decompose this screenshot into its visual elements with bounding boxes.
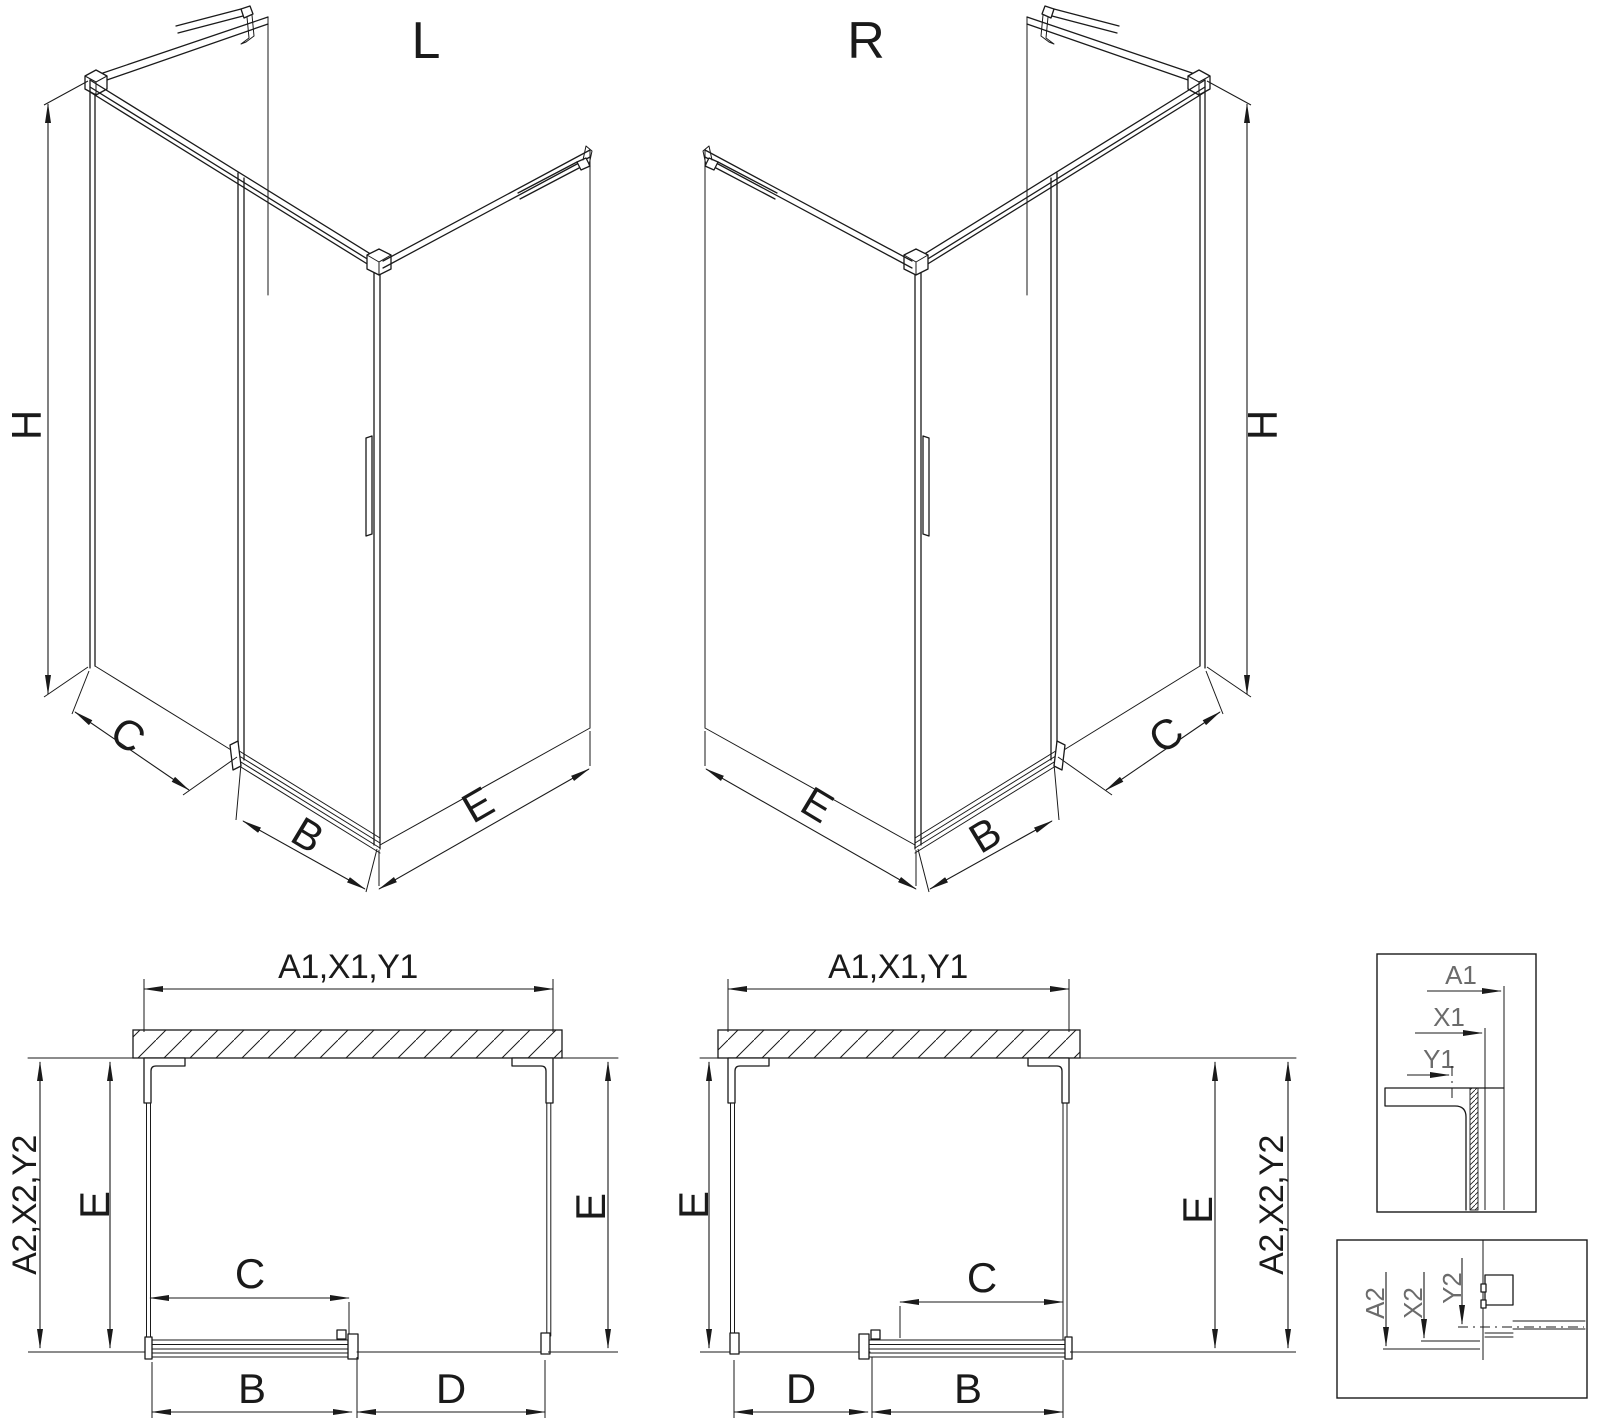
wall-section-hatched — [133, 1030, 562, 1058]
detail-x1-label: X1 — [1433, 1002, 1465, 1032]
shower-enclosure-drawing: L H C B E R H E B C A1,X1,Y1 E A2,X2,Y2 — [0, 0, 1600, 1423]
plan-right-dim-b: B — [954, 1365, 982, 1412]
wall-section-hatched — [718, 1030, 1080, 1058]
track-endcap-right — [1065, 1337, 1072, 1359]
plan-right-dim-top: A1,X1,Y1 — [828, 948, 968, 986]
iso-left-title: L — [412, 12, 441, 70]
iso-right-dim-c: C — [1140, 707, 1191, 763]
plan-right-dim-e-left: E — [670, 1191, 717, 1219]
plan-left-dim-outer: A2,X2,Y2 — [6, 1135, 44, 1275]
iso-left-dim-e: E — [454, 777, 502, 832]
plan-right-dim-c: C — [967, 1254, 997, 1301]
technical-drawing-sheet: L H C B E R H E B C A1,X1,Y1 E A2,X2,Y2 — [0, 0, 1600, 1423]
iso-right-dim-h: H — [1239, 410, 1286, 440]
dim-ext-a1 — [144, 979, 553, 1032]
iso-right-dim-b: B — [961, 807, 1009, 862]
floor-bracket-left — [730, 1333, 739, 1354]
plan-left-dim-top: A1,X1,Y1 — [278, 948, 418, 986]
iso-right-title: R — [847, 12, 885, 70]
plan-left-dim-d: D — [436, 1365, 466, 1412]
floor-bracket-right — [541, 1333, 550, 1354]
glass-panel-right — [547, 1103, 551, 1336]
iso-left-dim-b: B — [284, 807, 332, 862]
plan-left-dim-e-right: E — [567, 1193, 614, 1221]
glass-section-hatched — [1470, 1088, 1478, 1210]
door-roller — [871, 1330, 880, 1339]
wall-profile-right — [1028, 1058, 1069, 1103]
wall-profile-left — [144, 1058, 185, 1103]
detail-a1-label: A1 — [1445, 960, 1477, 990]
detail-top-profile: A1 X1 Y1 — [1377, 954, 1536, 1212]
door-track-plan — [148, 1340, 355, 1357]
iso-right-dim-e: E — [793, 777, 841, 832]
plan-right-dim-d: D — [786, 1365, 816, 1412]
plan-left-dim-c: C — [235, 1250, 265, 1297]
plan-right-dim-e-right: E — [1174, 1196, 1221, 1224]
track-profile-section — [1485, 1275, 1513, 1305]
door-track-plan — [862, 1340, 1069, 1357]
iso-left-dim-h: H — [3, 410, 50, 440]
iso-view-left: L H C B E — [3, 6, 592, 892]
plan-left-dim-e-left: E — [71, 1191, 118, 1219]
glass-panel-left — [147, 1103, 151, 1340]
plan-left-dim-b: B — [238, 1365, 266, 1412]
door-endcap — [348, 1334, 358, 1359]
iso-view-right: R H E B C — [703, 6, 1286, 892]
plan-view-left: A1,X1,Y1 E A2,X2,Y2 C B D E — [6, 948, 618, 1418]
detail-y1-label: Y1 — [1423, 1044, 1455, 1074]
glass-panel-right — [1063, 1103, 1067, 1340]
iso-left-dim-c: C — [102, 707, 153, 763]
door-roller — [337, 1330, 346, 1339]
detail-bottom-profile: A2 X2 Y2 — [1337, 1240, 1587, 1398]
glass-panel-left — [731, 1103, 735, 1336]
detail-frame — [1377, 954, 1536, 1212]
door-endcap — [859, 1334, 869, 1359]
wall-profile-left — [728, 1058, 769, 1103]
plan-view-right: A1,X1,Y1 E C D B E A2,X2,Y2 — [670, 948, 1296, 1418]
track-endcap-left — [145, 1337, 152, 1359]
plan-right-dim-outer: A2,X2,Y2 — [1253, 1135, 1291, 1275]
wall-profile-right — [512, 1058, 553, 1103]
